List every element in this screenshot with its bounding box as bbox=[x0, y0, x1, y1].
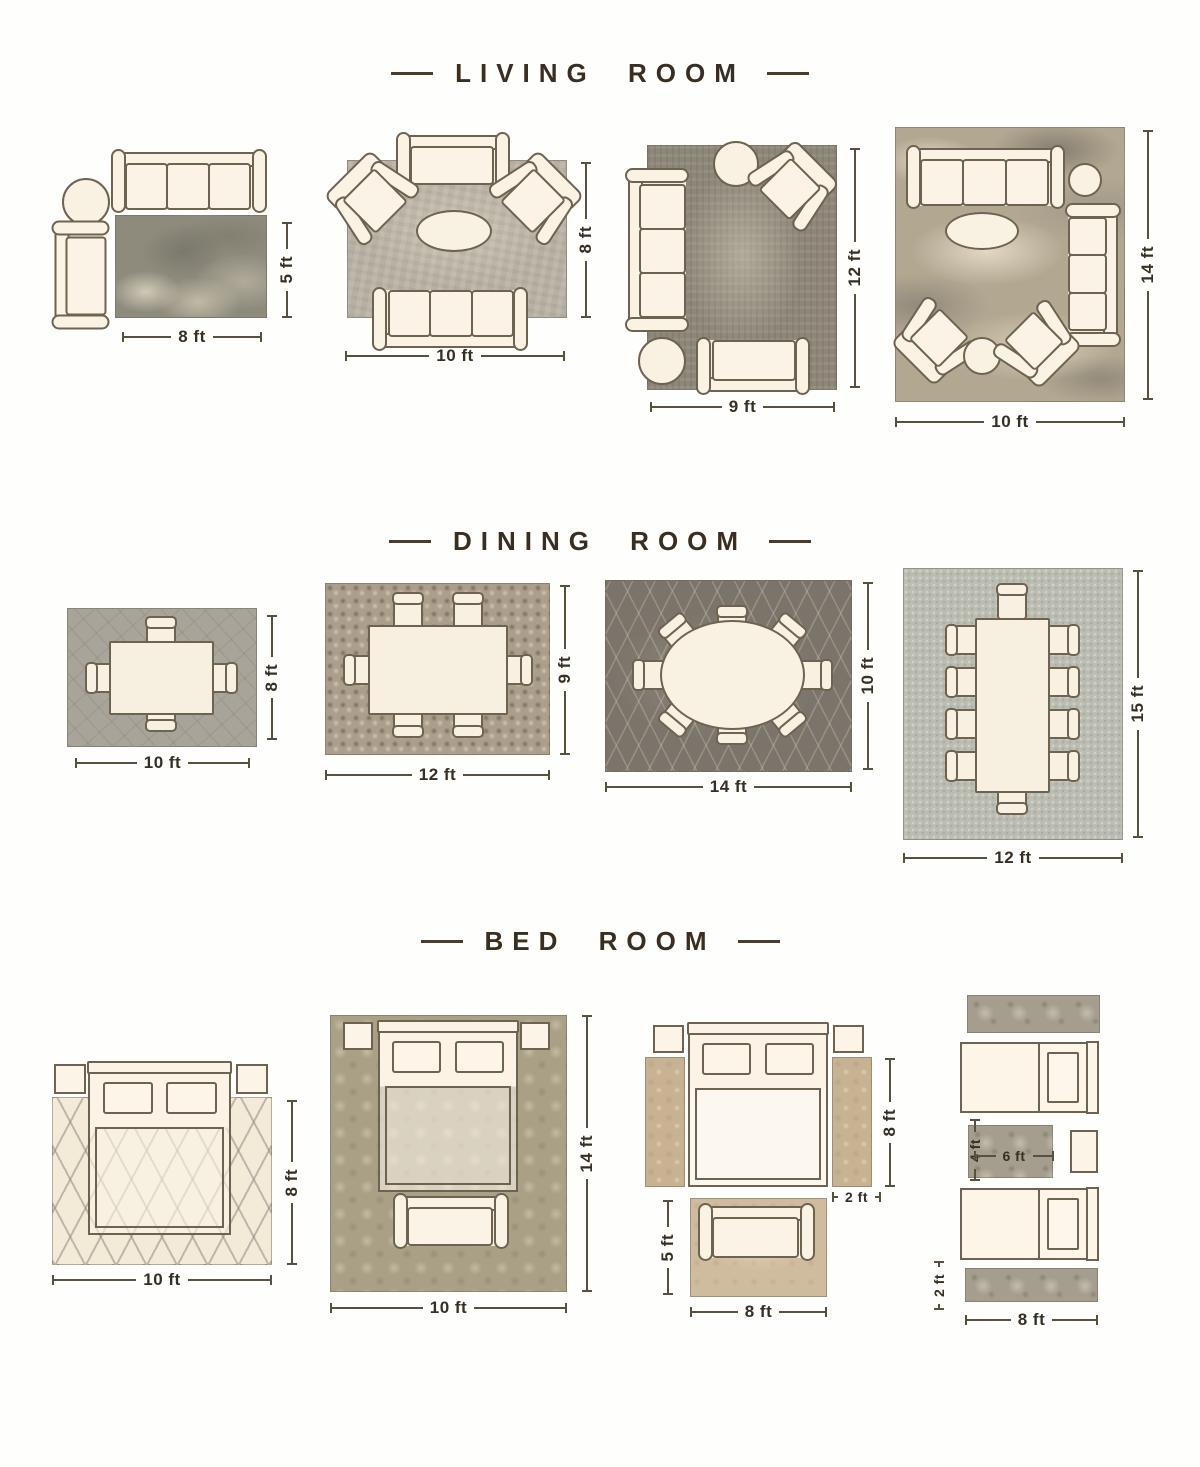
dimension-line bbox=[188, 1279, 272, 1281]
sofa bbox=[628, 170, 686, 330]
bed bbox=[378, 1022, 518, 1192]
width-dimension: 10 ft bbox=[330, 1299, 567, 1317]
dimension-line bbox=[667, 1200, 669, 1227]
sofa-arm bbox=[1065, 203, 1121, 218]
nightstand bbox=[833, 1025, 864, 1053]
dimension-label: 12 ft bbox=[845, 242, 865, 293]
dimension-line bbox=[1036, 421, 1125, 423]
dimension-line bbox=[474, 1307, 567, 1309]
dimension-line bbox=[1052, 1319, 1098, 1321]
dimension-line bbox=[867, 582, 869, 650]
sofa-cushion bbox=[125, 163, 168, 210]
dimension-line bbox=[463, 774, 550, 776]
sofa-cushion bbox=[962, 159, 1006, 206]
nightstand bbox=[653, 1025, 684, 1053]
runner-height-dimension: 2 ft bbox=[930, 1261, 948, 1309]
width-dimension: 14 ft bbox=[605, 778, 852, 796]
sofa-seats bbox=[639, 184, 686, 316]
sofa-cushion bbox=[1068, 292, 1107, 331]
loveseat-seats bbox=[66, 237, 107, 314]
sofa-arm bbox=[625, 168, 689, 183]
dining-table bbox=[368, 625, 508, 715]
sofa-cushion bbox=[166, 163, 209, 210]
dimension-line bbox=[854, 148, 856, 242]
height-dimension: 8 ft bbox=[263, 615, 281, 740]
loveseat bbox=[700, 1206, 813, 1258]
center-rug-width-dimension: 6 ft bbox=[974, 1147, 1054, 1165]
dimension-line bbox=[122, 336, 171, 338]
dimension-label: 2 ft bbox=[838, 1189, 875, 1205]
dimension-label: 8 ft bbox=[1011, 1310, 1053, 1330]
sofa-cushion bbox=[639, 228, 686, 274]
dimension-label: 8 ft bbox=[738, 1302, 780, 1322]
dimension-label: 12 ft bbox=[412, 765, 463, 785]
loveseat-arm bbox=[795, 337, 810, 395]
nightstand bbox=[54, 1064, 86, 1094]
width-dimension: 9 ft bbox=[650, 398, 835, 416]
loveseat-cushion bbox=[66, 237, 107, 316]
dimension-line bbox=[974, 1119, 976, 1132]
bed-blanket bbox=[695, 1088, 821, 1180]
dimension-line bbox=[854, 294, 856, 388]
sofa-arm bbox=[111, 149, 126, 213]
dimension-line bbox=[330, 1307, 423, 1309]
twin-bed-blanket-edge bbox=[1038, 1044, 1040, 1111]
dimension-line bbox=[52, 1279, 136, 1281]
dimension-line bbox=[286, 222, 288, 249]
dimension-line bbox=[974, 1169, 976, 1182]
dimension-label: 12 ft bbox=[987, 848, 1038, 868]
sofa-arm bbox=[252, 149, 267, 213]
loveseat bbox=[398, 135, 508, 185]
dimension-line bbox=[903, 857, 987, 859]
nightstand bbox=[343, 1022, 373, 1050]
dimension-line bbox=[1147, 130, 1149, 239]
bed-pillow bbox=[392, 1041, 441, 1073]
height-dimension: 8 ft bbox=[577, 162, 595, 318]
bed-room-layout-runners: 8 ft 2 ft 5 ft 8 ft bbox=[635, 1012, 905, 1322]
dining-chair bbox=[393, 595, 423, 629]
loveseat-arm bbox=[800, 1203, 815, 1261]
oval-coffee-table bbox=[945, 212, 1019, 250]
dining-table bbox=[975, 618, 1050, 793]
loveseat-arm bbox=[698, 1203, 713, 1261]
title-dash bbox=[421, 940, 463, 943]
twin-bed-headboard bbox=[1086, 1041, 1099, 1114]
rug-8x5 bbox=[115, 215, 267, 318]
dimension-line bbox=[481, 355, 565, 357]
dimension-label: 8 ft bbox=[282, 1162, 302, 1204]
height-dimension: 5 ft bbox=[278, 222, 296, 318]
dimension-line bbox=[271, 698, 273, 740]
sofa-seats bbox=[1068, 219, 1107, 331]
bed-blanket bbox=[385, 1086, 511, 1185]
dimension-line bbox=[564, 691, 566, 755]
dimension-label: 8 ft bbox=[576, 219, 596, 261]
runner-rug bbox=[967, 995, 1100, 1033]
loveseat-arm bbox=[393, 1193, 408, 1249]
dimension-line bbox=[938, 1304, 940, 1310]
living-room-layout-10x14: 14 ft 10 ft bbox=[885, 115, 1175, 435]
bench-loveseat bbox=[395, 1196, 507, 1246]
sofa-cushion bbox=[639, 184, 686, 230]
dimension-line bbox=[271, 615, 273, 657]
dimension-line bbox=[585, 162, 587, 219]
loveseat-seats bbox=[714, 1217, 799, 1258]
dimension-label: 8 ft bbox=[262, 657, 282, 699]
dimension-line bbox=[690, 1311, 738, 1313]
dimension-label: 10 ft bbox=[984, 412, 1035, 432]
dimension-label: 10 ft bbox=[136, 1270, 187, 1290]
dimension-line bbox=[291, 1203, 293, 1265]
bed-room-layout-10x14: 14 ft 10 ft bbox=[320, 1005, 610, 1325]
dimension-line bbox=[188, 762, 250, 764]
runner-rug bbox=[832, 1057, 872, 1187]
bed-headboard bbox=[377, 1020, 519, 1033]
dimension-line bbox=[889, 1143, 891, 1187]
bed-room-layout-10x8: 8 ft 10 ft bbox=[40, 1050, 320, 1295]
title-dash bbox=[391, 72, 433, 75]
living-room-layout-8x5: 5 ft 8 ft bbox=[45, 125, 325, 355]
sofa-cushion bbox=[1005, 159, 1049, 206]
twin-bed-pillow bbox=[1047, 1198, 1079, 1250]
dimension-label: 2 ft bbox=[931, 1267, 947, 1304]
round-side-table bbox=[638, 337, 686, 385]
section-title-living-room: LIVING ROOM bbox=[0, 58, 1200, 89]
runner-width-dimension: 2 ft bbox=[832, 1188, 880, 1206]
dimension-line bbox=[779, 1311, 827, 1313]
dimension-line bbox=[974, 1155, 996, 1157]
dimension-line bbox=[564, 585, 566, 649]
twin-bed-blanket-edge bbox=[1038, 1190, 1040, 1258]
dimension-line bbox=[291, 1100, 293, 1162]
bed-pillow bbox=[765, 1043, 814, 1075]
sofa-arm bbox=[906, 145, 921, 209]
loveseat-cushion bbox=[410, 146, 494, 185]
dining-chair bbox=[997, 586, 1027, 620]
height-dimension: 9 ft bbox=[556, 585, 574, 755]
living-room-layout-9x12: 12 ft 9 ft bbox=[615, 130, 880, 420]
twin-bed-pillow bbox=[1047, 1052, 1079, 1103]
rug-size-guide: LIVING ROOM 5 ft 8 ft bbox=[0, 0, 1200, 1467]
loveseat-cushion bbox=[712, 1217, 799, 1258]
sofa-arm bbox=[625, 317, 689, 332]
dimension-label: 14 ft bbox=[577, 1128, 597, 1179]
sofa-arm bbox=[372, 287, 387, 351]
dimension-line bbox=[650, 406, 722, 408]
width-dimension: 10 ft bbox=[75, 754, 250, 772]
loveseat-seats bbox=[712, 340, 794, 381]
dimension-label: 6 ft bbox=[996, 1148, 1033, 1164]
sofa-seats bbox=[127, 163, 251, 210]
dining-table bbox=[109, 641, 214, 715]
loveseat bbox=[698, 340, 808, 392]
dimension-label: 10 ft bbox=[137, 753, 188, 773]
dimension-line bbox=[867, 702, 869, 770]
sofa bbox=[374, 290, 526, 348]
sofa-cushion bbox=[639, 272, 686, 318]
dimension-line bbox=[286, 291, 288, 318]
dimension-label: 9 ft bbox=[722, 397, 764, 417]
bed-pillow bbox=[455, 1041, 504, 1073]
sofa-cushion bbox=[471, 290, 514, 337]
dimension-label: 15 ft bbox=[1128, 678, 1148, 729]
dimension-line bbox=[965, 1319, 1011, 1321]
dimension-line bbox=[605, 786, 703, 788]
dimension-label: 9 ft bbox=[555, 649, 575, 691]
bed-headboard bbox=[687, 1022, 829, 1035]
sofa-seats bbox=[922, 159, 1049, 206]
dimension-line bbox=[345, 355, 429, 357]
width-dimension: 10 ft bbox=[345, 347, 565, 365]
dining-room-layout-14x10: 10 ft 14 ft bbox=[595, 570, 885, 800]
loveseat-arm bbox=[696, 337, 711, 395]
sofa-arm bbox=[513, 287, 528, 351]
bed-blanket bbox=[95, 1127, 224, 1228]
width-dimension: 8 ft bbox=[122, 328, 262, 346]
round-side-table bbox=[1068, 163, 1102, 197]
dimension-label: 10 ft bbox=[429, 346, 480, 366]
loveseat-seats bbox=[412, 146, 494, 185]
nightstand bbox=[236, 1064, 268, 1094]
height-dimension: 14 ft bbox=[578, 1015, 596, 1292]
dimension-line bbox=[1147, 291, 1149, 400]
height-dimension: 14 ft bbox=[1139, 130, 1157, 400]
sofa-cushion bbox=[388, 290, 431, 337]
dimension-line bbox=[586, 1179, 588, 1292]
sofa bbox=[908, 148, 1063, 206]
section-title-dining-room: DINING ROOM bbox=[0, 526, 1200, 557]
accent-rug-width-dimension: 8 ft bbox=[690, 1303, 827, 1321]
nightstand bbox=[520, 1022, 550, 1050]
dimension-line bbox=[585, 261, 587, 318]
title-dash bbox=[769, 540, 811, 543]
width-dimension: 12 ft bbox=[903, 849, 1123, 867]
twin-bed-headboard bbox=[1086, 1187, 1099, 1261]
sofa-cushion bbox=[1068, 254, 1107, 293]
dimension-line bbox=[895, 421, 984, 423]
dining-room-layout-12x9: 9 ft 12 ft bbox=[315, 575, 585, 790]
dimension-line bbox=[1137, 730, 1139, 838]
runner-rug bbox=[645, 1057, 685, 1187]
height-dimension: 12 ft bbox=[846, 148, 864, 388]
bed-pillow bbox=[166, 1082, 216, 1114]
sofa-cushion bbox=[920, 159, 964, 206]
width-dimension: 10 ft bbox=[895, 413, 1125, 431]
dining-room-layout-12x15: 15 ft 12 ft bbox=[893, 558, 1163, 868]
runner-length-dimension: 8 ft bbox=[881, 1058, 899, 1187]
loveseat-arm bbox=[52, 221, 110, 236]
loveseat-arm bbox=[52, 315, 110, 330]
dining-room-layout-10x8: 8 ft 10 ft bbox=[55, 595, 320, 775]
runner-width-dimension: 8 ft bbox=[965, 1311, 1098, 1329]
section-title-text: DINING ROOM bbox=[453, 526, 747, 557]
dimension-label: 14 ft bbox=[1138, 239, 1158, 290]
dimension-label: 14 ft bbox=[703, 777, 754, 797]
dimension-line bbox=[1039, 857, 1123, 859]
width-dimension: 10 ft bbox=[52, 1271, 272, 1289]
section-title-text: LIVING ROOM bbox=[455, 58, 745, 89]
sofa bbox=[1068, 205, 1118, 345]
bed-pillow bbox=[103, 1082, 153, 1114]
dimension-line bbox=[667, 1268, 669, 1295]
section-title-bed-room: BED ROOM bbox=[0, 926, 1200, 957]
sofa-cushion bbox=[429, 290, 472, 337]
dimension-label: 8 ft bbox=[880, 1102, 900, 1144]
height-dimension: 15 ft bbox=[1129, 570, 1147, 838]
bed bbox=[688, 1024, 828, 1187]
sofa-cushion bbox=[208, 163, 251, 210]
loveseat-cushion bbox=[407, 1207, 493, 1246]
runner-rug bbox=[965, 1268, 1098, 1302]
dimension-line bbox=[832, 1196, 838, 1198]
bed-pillow bbox=[702, 1043, 751, 1075]
width-dimension: 12 ft bbox=[325, 766, 550, 784]
dimension-label: 10 ft bbox=[423, 1298, 474, 1318]
loveseat bbox=[55, 223, 107, 328]
dimension-label: 5 ft bbox=[658, 1227, 678, 1269]
oval-dining-table bbox=[660, 620, 805, 730]
loveseat-arm bbox=[494, 1193, 509, 1249]
loveseat-seats bbox=[409, 1207, 493, 1246]
height-dimension: 10 ft bbox=[859, 582, 877, 770]
dimension-label: 10 ft bbox=[858, 650, 878, 701]
bed-headboard bbox=[87, 1061, 232, 1074]
dimension-label: 8 ft bbox=[171, 327, 213, 347]
title-dash bbox=[389, 540, 431, 543]
round-side-table bbox=[62, 178, 110, 226]
sofa-arm bbox=[1050, 145, 1065, 209]
loveseat-cushion bbox=[712, 340, 796, 381]
nightstand bbox=[1070, 1130, 1098, 1173]
oval-coffee-table bbox=[416, 210, 492, 252]
twin-bed bbox=[960, 1042, 1098, 1113]
dimension-line bbox=[1137, 570, 1139, 678]
dimension-line bbox=[754, 786, 852, 788]
bed bbox=[88, 1063, 231, 1235]
title-dash bbox=[738, 940, 780, 943]
dimension-line bbox=[889, 1058, 891, 1102]
dimension-line bbox=[213, 336, 262, 338]
title-dash bbox=[767, 72, 809, 75]
dimension-line bbox=[1033, 1155, 1055, 1157]
dimension-label: 5 ft bbox=[277, 249, 297, 291]
section-title-text: BED ROOM bbox=[485, 926, 716, 957]
sofa bbox=[113, 152, 265, 210]
bed-room-layout-twin-runners: 4 ft 6 ft 2 ft 8 ft bbox=[930, 985, 1160, 1330]
dining-chair bbox=[453, 595, 483, 629]
dimension-line bbox=[75, 762, 137, 764]
height-dimension: 8 ft bbox=[283, 1100, 301, 1265]
living-room-layout-10x8: 8 ft 10 ft bbox=[335, 125, 605, 370]
dimension-line bbox=[325, 774, 412, 776]
twin-bed bbox=[960, 1188, 1098, 1260]
dimension-line bbox=[763, 406, 835, 408]
accent-rug-height-dimension: 5 ft bbox=[659, 1200, 677, 1295]
sofa-seats bbox=[388, 290, 512, 337]
dimension-line bbox=[875, 1196, 881, 1198]
dimension-line bbox=[586, 1015, 588, 1128]
sofa-cushion bbox=[1068, 217, 1107, 256]
